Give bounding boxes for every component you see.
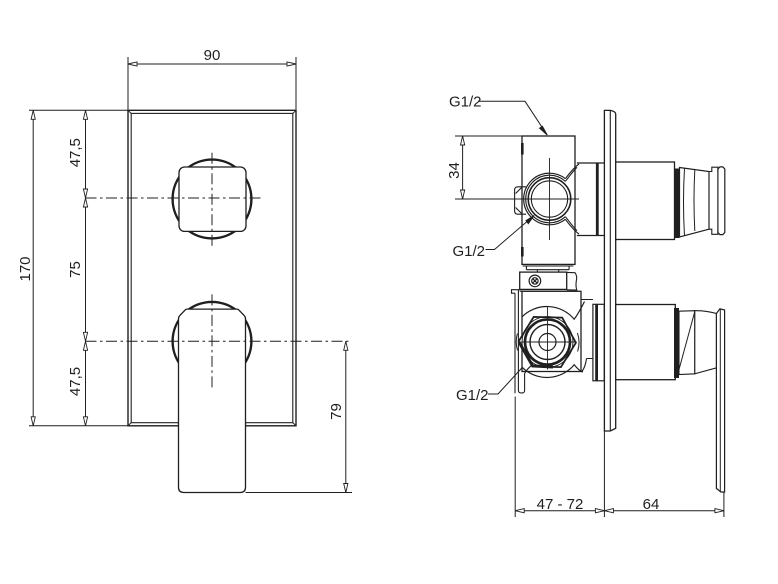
svg-text:G1/2: G1/2 bbox=[453, 243, 486, 260]
svg-text:47 - 72: 47 - 72 bbox=[537, 496, 584, 513]
svg-text:47,5: 47,5 bbox=[67, 367, 84, 396]
svg-text:64: 64 bbox=[643, 496, 660, 513]
svg-text:34: 34 bbox=[446, 162, 463, 179]
svg-text:47,5: 47,5 bbox=[67, 138, 84, 167]
svg-text:170: 170 bbox=[17, 256, 34, 281]
svg-text:75: 75 bbox=[67, 261, 84, 278]
svg-text:G1/2: G1/2 bbox=[449, 94, 482, 111]
svg-text:G1/2: G1/2 bbox=[456, 387, 489, 404]
svg-text:79: 79 bbox=[328, 403, 345, 420]
svg-text:90: 90 bbox=[204, 47, 221, 64]
